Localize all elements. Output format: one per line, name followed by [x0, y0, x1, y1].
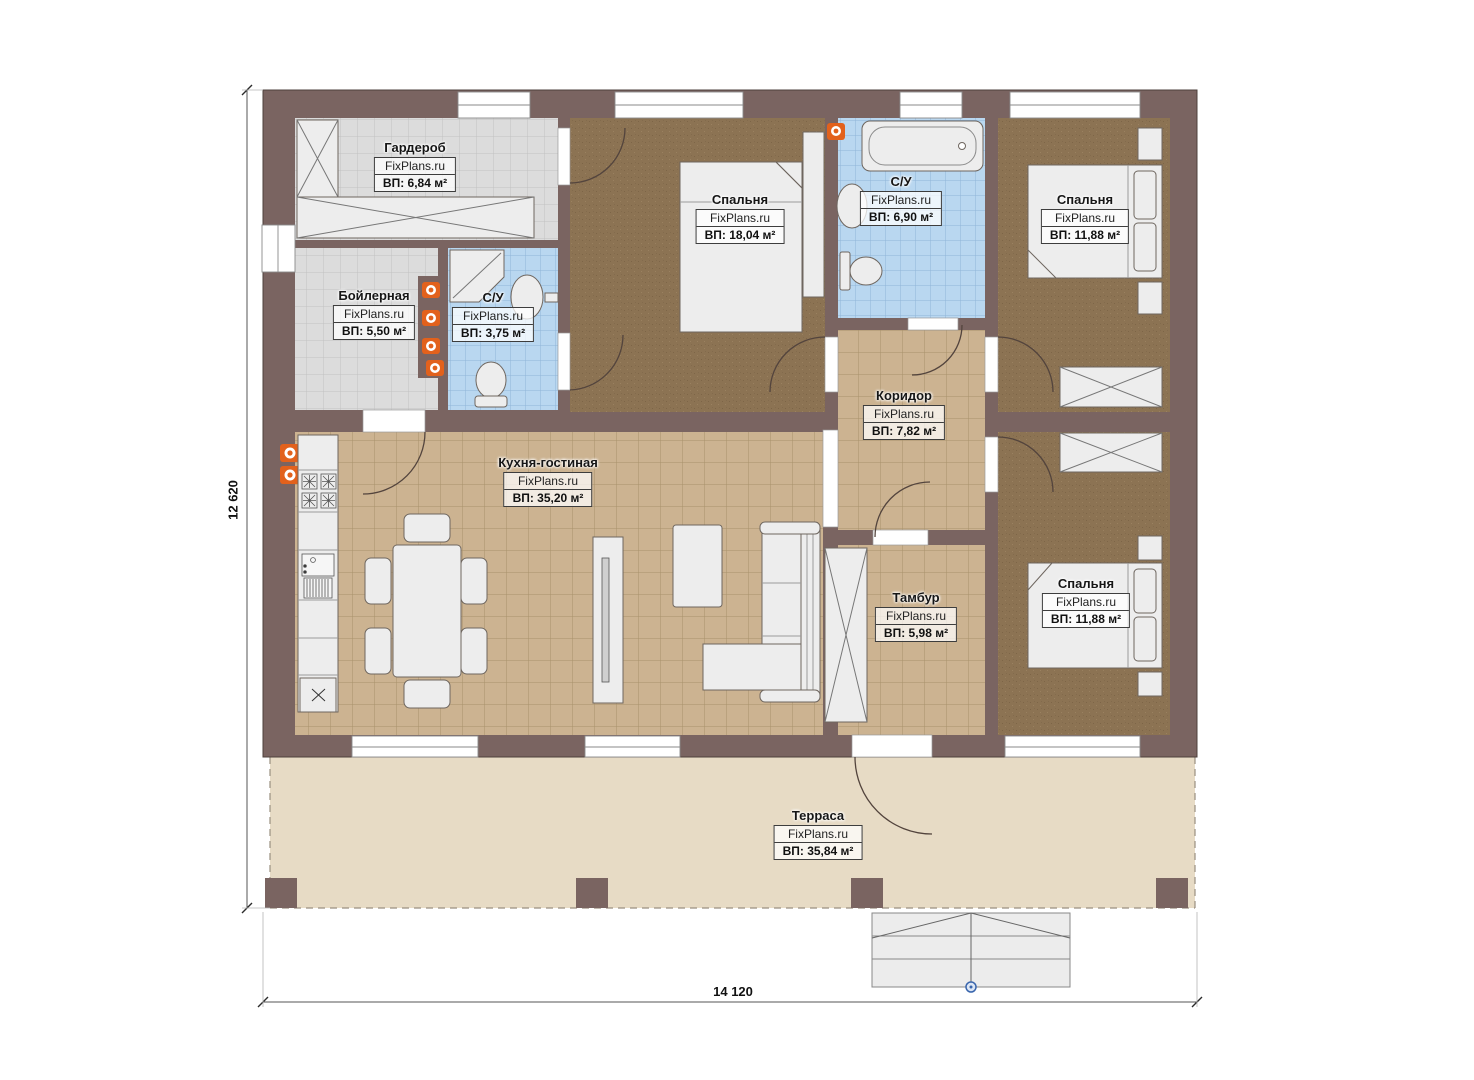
room-name: С/У [452, 290, 534, 305]
room-info-box: FixPlans.ru ВП: 6,90 м² [860, 191, 942, 226]
radiator-icon [280, 466, 300, 484]
room-area: ВП: 11,88 м² [1042, 227, 1128, 243]
terrace-area [265, 757, 1195, 908]
room-name: Спальня [696, 192, 785, 207]
room-brand: FixPlans.ru [334, 306, 414, 323]
entrance-door-opening [852, 735, 932, 757]
window [352, 736, 478, 757]
room-info-box: FixPlans.ru ВП: 35,84 м² [774, 825, 863, 860]
room-brand: FixPlans.ru [861, 192, 941, 209]
dimension-height-label: 12 620 [226, 480, 241, 520]
radiator-icon [422, 310, 440, 326]
kitchen-sink [302, 554, 334, 598]
room-brand: FixPlans.ru [453, 308, 533, 325]
room-info-box: FixPlans.ru ВП: 18,04 м² [696, 209, 785, 244]
nightstand [1138, 672, 1162, 696]
room-label-bath-main: С/У FixPlans.ru ВП: 6,90 м² [860, 174, 942, 226]
window [585, 736, 680, 757]
room-area: ВП: 5,50 м² [334, 323, 414, 339]
room-label-corridor: Коридор FixPlans.ru ВП: 7,82 м² [863, 388, 945, 440]
room-brand: FixPlans.ru [775, 826, 862, 843]
window [1010, 92, 1140, 118]
wardrobe-x [825, 548, 867, 722]
room-info-box: FixPlans.ru ВП: 7,82 м² [863, 405, 945, 440]
wardrobe-x [1060, 433, 1162, 472]
room-area: ВП: 11,88 м² [1043, 611, 1129, 627]
room-info-box: FixPlans.ru ВП: 11,88 м² [1041, 209, 1129, 244]
kitchen-unit-x [300, 678, 336, 712]
bed [680, 162, 802, 332]
room-brand: FixPlans.ru [876, 608, 956, 625]
room-label-boiler: Бойлерная FixPlans.ru ВП: 5,50 м² [333, 288, 415, 340]
dimension-width-label: 14 120 [713, 984, 753, 999]
room-area: ВП: 6,90 м² [861, 209, 941, 225]
nightstand [1138, 282, 1162, 314]
room-area: ВП: 5,98 м² [876, 625, 956, 641]
wardrobe-x [1060, 367, 1162, 407]
room-name: Терраса [774, 808, 863, 823]
nightstand [1138, 536, 1162, 560]
window [900, 92, 962, 118]
floor-plan-drawing [0, 0, 1474, 1080]
nightstand [1138, 128, 1162, 160]
room-label-kitchen-living: Кухня-гостиная FixPlans.ru ВП: 35,20 м² [498, 455, 598, 507]
tv-stand [593, 537, 623, 703]
radiator-icon [827, 123, 845, 140]
room-label-wardrobe: Гардероб FixPlans.ru ВП: 6,84 м² [374, 140, 456, 192]
floor-plan-page: Гардероб FixPlans.ru ВП: 6,84 м² Бойлерн… [0, 0, 1474, 1080]
room-name: Спальня [1041, 192, 1129, 207]
room-brand: FixPlans.ru [1043, 594, 1129, 611]
room-area: ВП: 6,84 м² [375, 175, 455, 191]
room-info-box: FixPlans.ru ВП: 5,98 м² [875, 607, 957, 642]
room-area: ВП: 7,82 м² [864, 423, 944, 439]
room-label-bedroom-3: Спальня FixPlans.ru ВП: 11,88 м² [1042, 576, 1130, 628]
room-name: Кухня-гостиная [498, 455, 598, 470]
room-info-box: FixPlans.ru ВП: 6,84 м² [374, 157, 456, 192]
wardrobe-strip [803, 132, 824, 297]
room-brand: FixPlans.ru [1042, 210, 1128, 227]
room-name: Тамбур [875, 590, 957, 605]
coffee-table [673, 525, 722, 607]
room-label-bedroom-2: Спальня FixPlans.ru ВП: 11,88 м² [1041, 192, 1129, 244]
room-name: Бойлерная [333, 288, 415, 303]
room-area: ВП: 3,75 м² [453, 325, 533, 341]
radiator-icon [422, 282, 440, 298]
room-area: ВП: 35,20 м² [505, 490, 592, 506]
room-info-box: FixPlans.ru ВП: 5,50 м² [333, 305, 415, 340]
room-name: Гардероб [374, 140, 456, 155]
room-brand: FixPlans.ru [864, 406, 944, 423]
window [1005, 736, 1140, 757]
room-name: Коридор [863, 388, 945, 403]
room-info-box: FixPlans.ru ВП: 11,88 м² [1042, 593, 1130, 628]
room-info-box: FixPlans.ru ВП: 35,20 м² [504, 472, 593, 507]
room-label-bedroom-1: Спальня FixPlans.ru ВП: 18,04 м² [696, 192, 785, 244]
room-label-bath-small: С/У FixPlans.ru ВП: 3,75 м² [452, 290, 534, 342]
room-brand: FixPlans.ru [375, 158, 455, 175]
entrance-steps [872, 913, 1070, 992]
room-name: Спальня [1042, 576, 1130, 591]
room-label-terrace: Терраса FixPlans.ru ВП: 35,84 м² [774, 808, 863, 860]
room-info-box: FixPlans.ru ВП: 3,75 м² [452, 307, 534, 342]
window [262, 225, 295, 272]
bathtub [862, 121, 983, 171]
room-brand: FixPlans.ru [697, 210, 784, 227]
room-area: ВП: 35,84 м² [775, 843, 862, 859]
room-brand: FixPlans.ru [505, 473, 592, 490]
window [615, 92, 743, 118]
toilet [475, 362, 507, 407]
window [458, 92, 530, 118]
radiator-icon [280, 444, 300, 462]
room-name: С/У [860, 174, 942, 189]
room-label-vestibule: Тамбур FixPlans.ru ВП: 5,98 м² [875, 590, 957, 642]
radiator-icon [426, 360, 444, 376]
room-area: ВП: 18,04 м² [697, 227, 784, 243]
radiator-icon [422, 338, 440, 354]
